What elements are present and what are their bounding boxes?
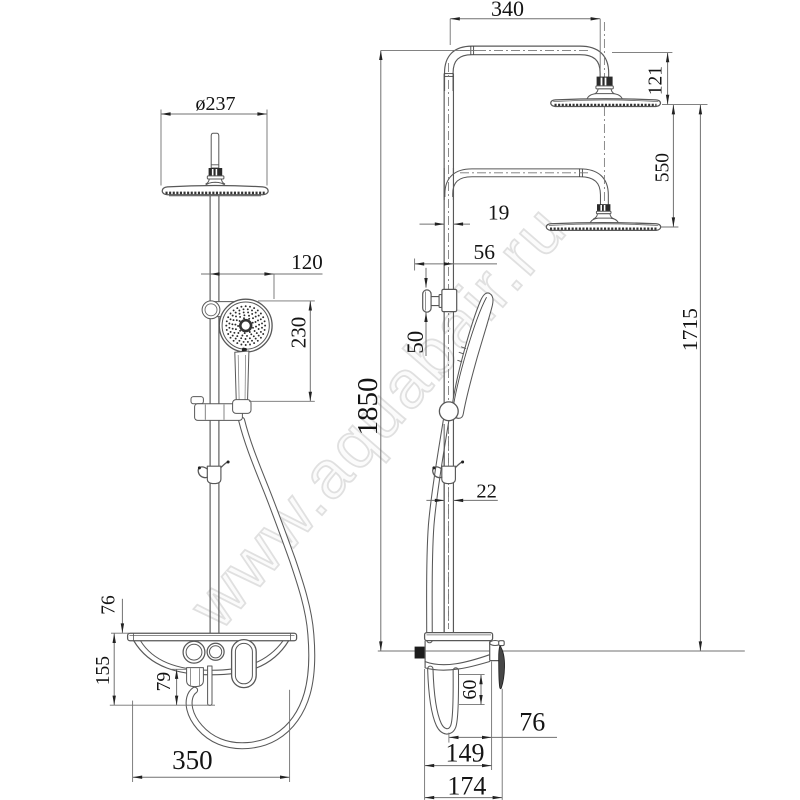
svg-text:76: 76 bbox=[99, 595, 120, 615]
svg-text:19: 19 bbox=[488, 201, 510, 225]
svg-text:76: 76 bbox=[519, 708, 545, 737]
svg-text:56: 56 bbox=[473, 240, 495, 264]
svg-text:120: 120 bbox=[291, 250, 323, 274]
svg-text:174: 174 bbox=[447, 772, 486, 800]
svg-text:155: 155 bbox=[93, 656, 114, 685]
svg-text:340: 340 bbox=[491, 0, 524, 21]
svg-text:350: 350 bbox=[172, 745, 213, 775]
svg-text:550: 550 bbox=[653, 153, 674, 182]
svg-text:121: 121 bbox=[645, 66, 666, 95]
svg-text:50: 50 bbox=[403, 331, 428, 354]
svg-text:60: 60 bbox=[459, 680, 481, 700]
svg-text:79: 79 bbox=[154, 672, 175, 692]
svg-text:230: 230 bbox=[286, 317, 310, 349]
svg-text:ø237: ø237 bbox=[196, 93, 236, 115]
svg-text:1850: 1850 bbox=[352, 378, 384, 436]
svg-text:22: 22 bbox=[476, 481, 497, 503]
svg-text:1715: 1715 bbox=[678, 308, 702, 351]
svg-text:149: 149 bbox=[446, 739, 485, 768]
